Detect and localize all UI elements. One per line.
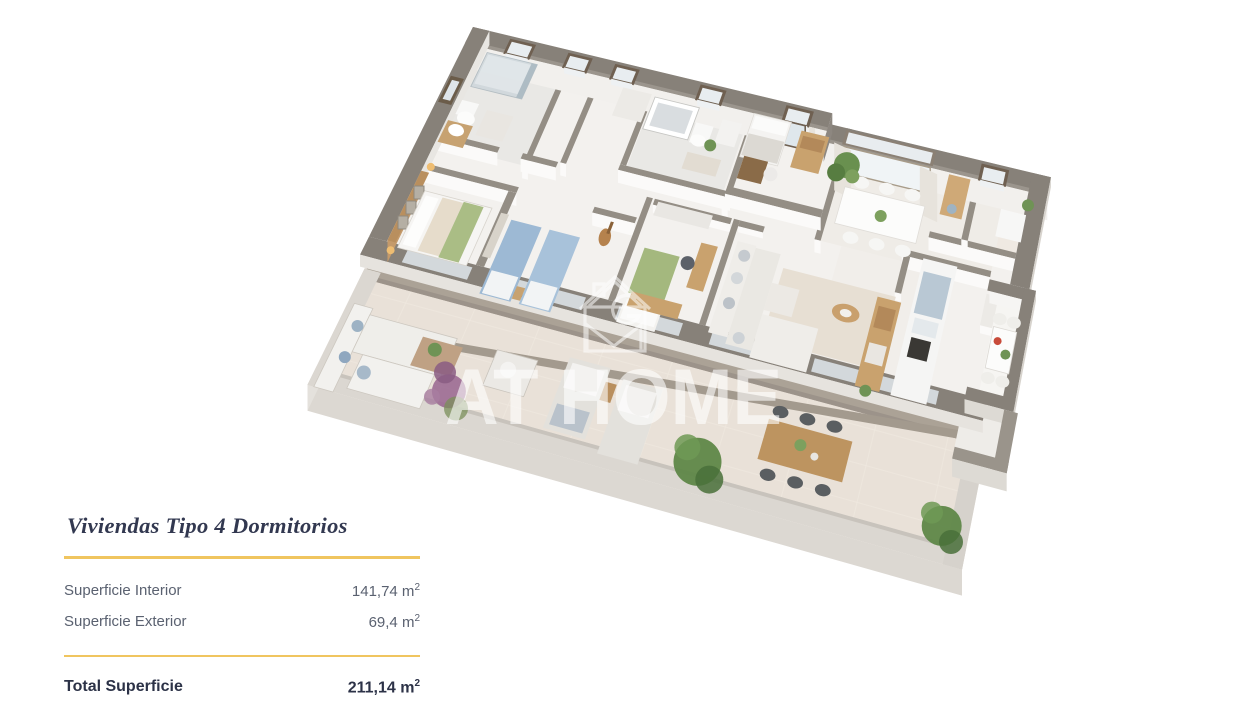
- svg-text:AT HOME: AT HOME: [445, 352, 782, 441]
